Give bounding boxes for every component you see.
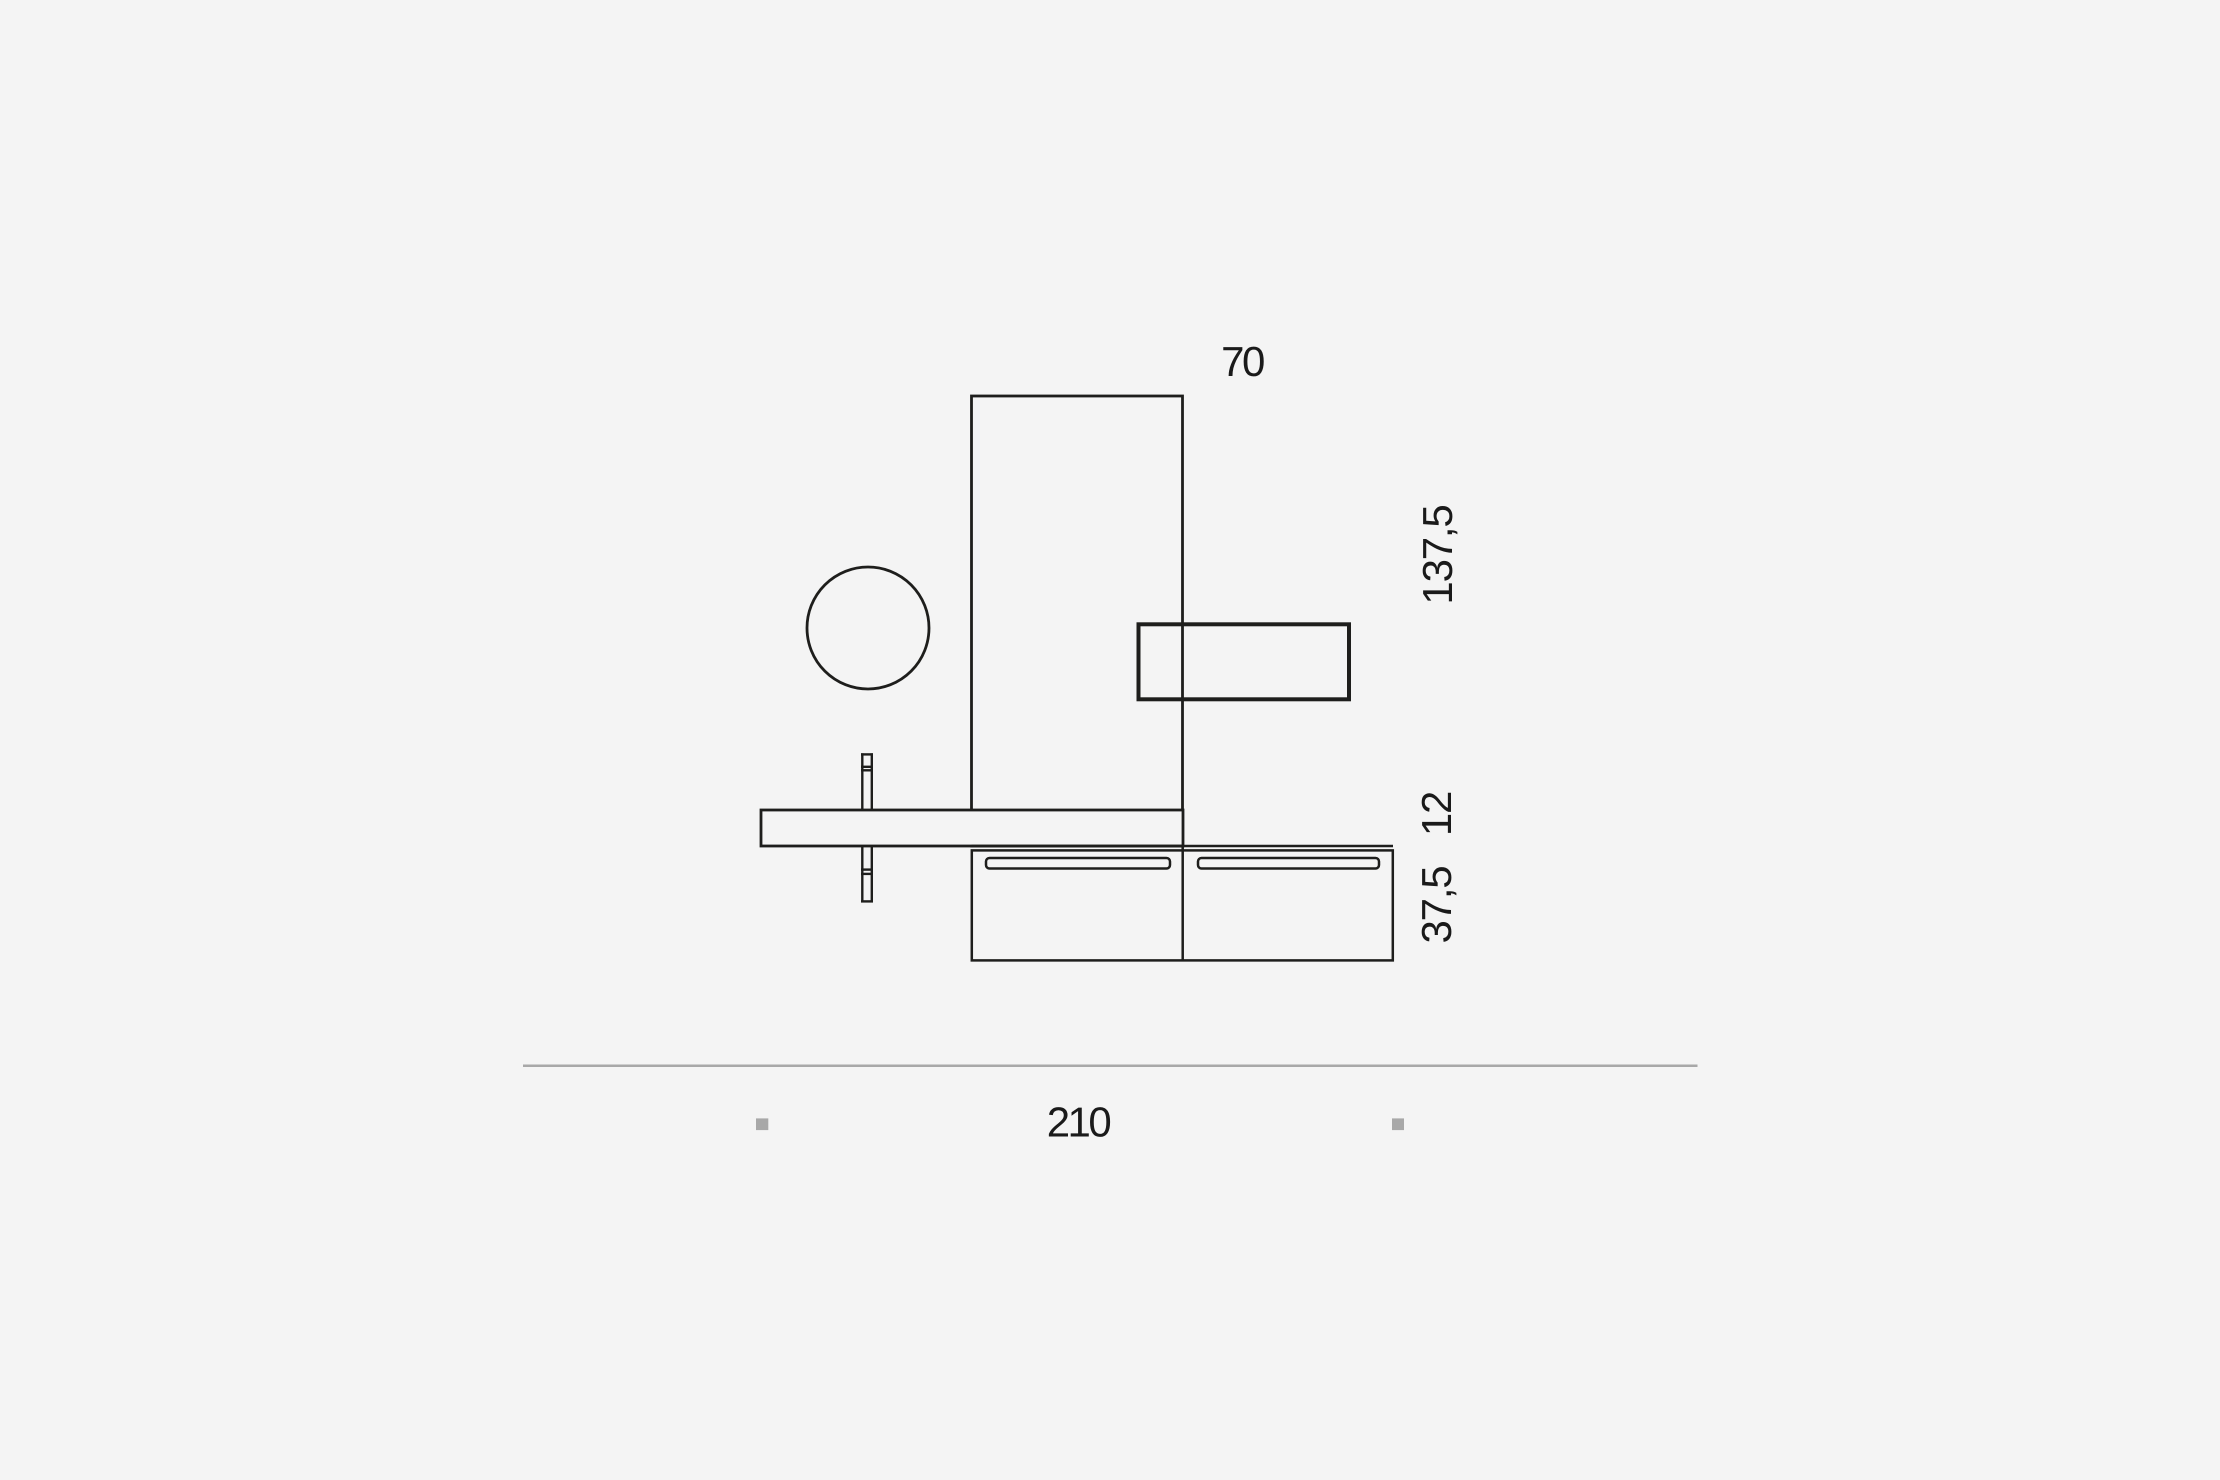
svg-text:210: 210 (1047, 1099, 1111, 1146)
svg-text:12: 12 (1413, 792, 1460, 836)
svg-text:37,5: 37,5 (1413, 867, 1460, 944)
svg-text:137,5: 137,5 (1414, 505, 1461, 604)
svg-text:70: 70 (1221, 338, 1264, 385)
